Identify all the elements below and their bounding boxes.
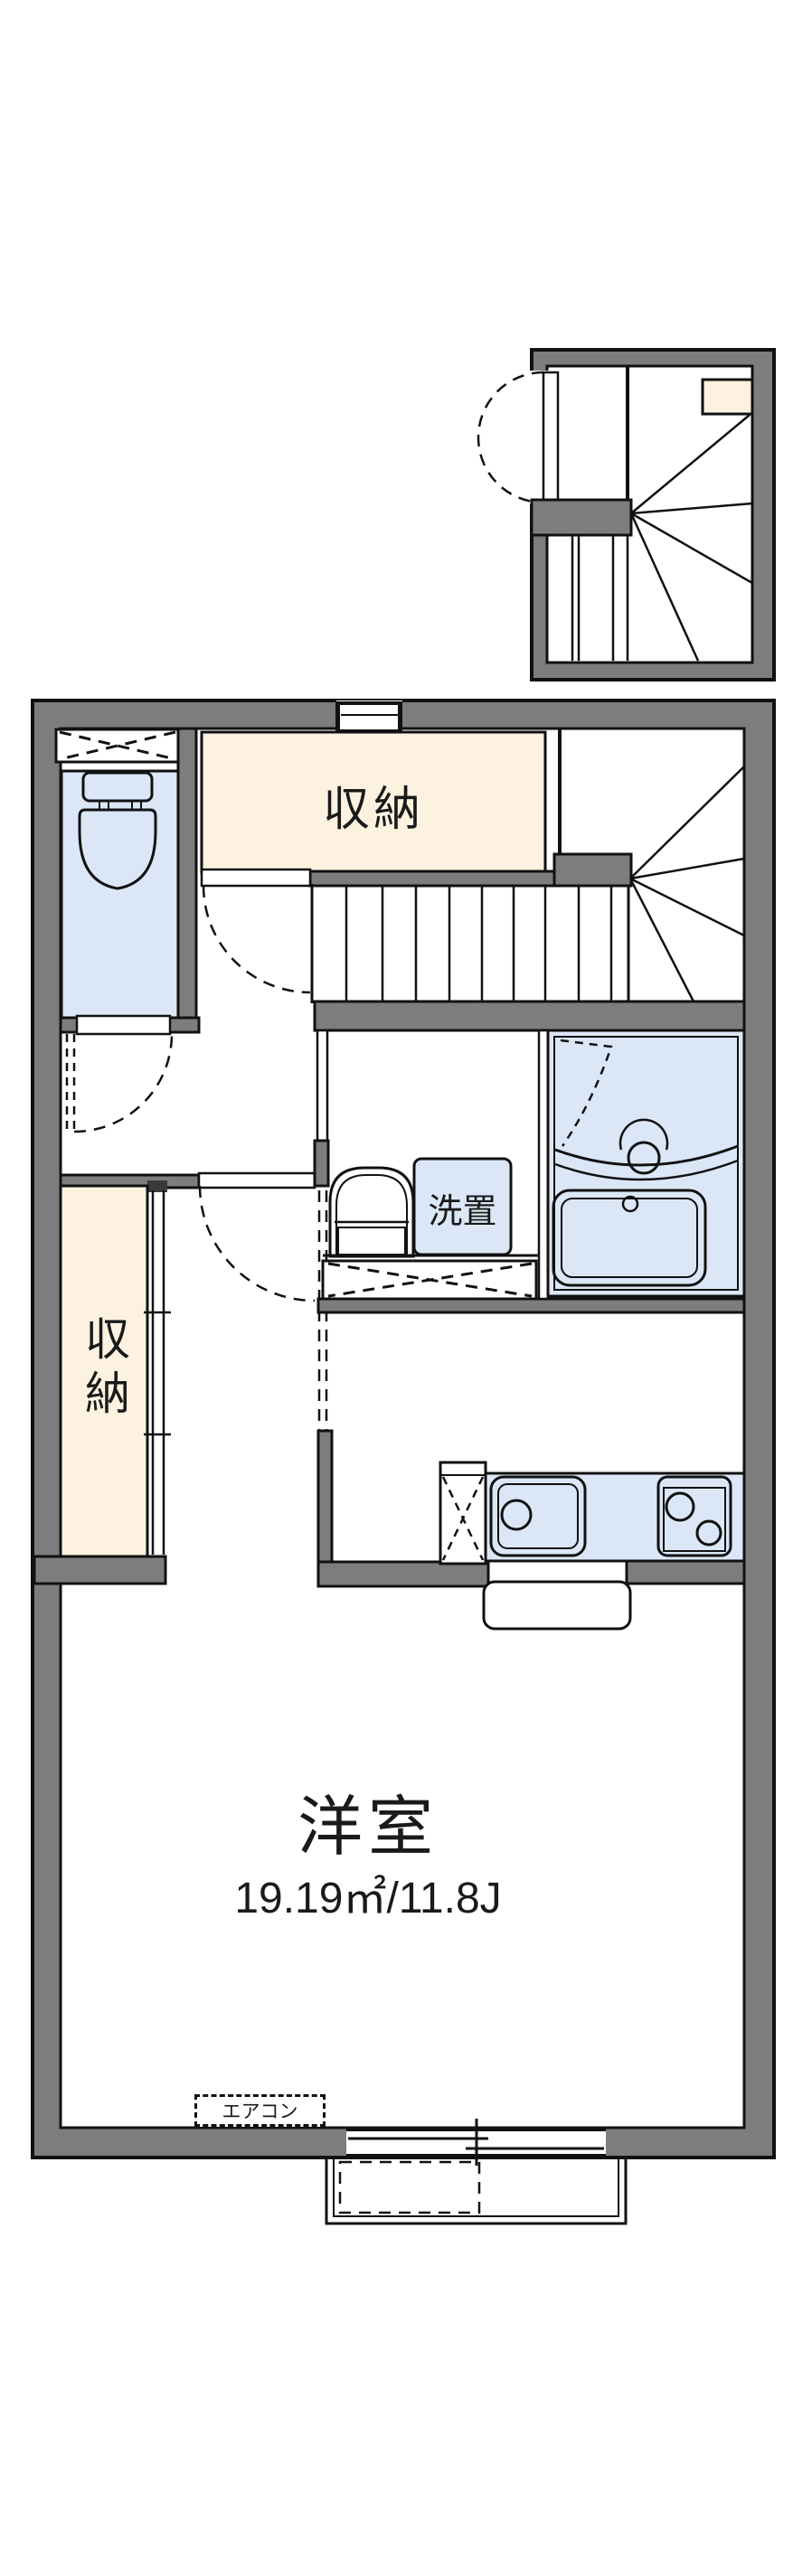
balcony-outer — [326, 2158, 626, 2223]
toilet-floor — [61, 771, 178, 1020]
room-area-label: 19.19㎡/11.8J — [142, 1867, 594, 1920]
bathroom-floor — [548, 1030, 744, 1296]
laundry-label: 洗置 — [414, 1164, 511, 1251]
balcony — [326, 2158, 626, 2223]
balcony-inner — [334, 2158, 618, 2216]
washroom-wall-stub — [315, 1141, 328, 1186]
closet-door-sill — [202, 870, 310, 886]
aircon-box: エアコン — [194, 2094, 326, 2127]
bathroom — [539, 1030, 744, 1299]
washroom-west-wall — [317, 1030, 327, 1141]
toilet-door-sill — [77, 1016, 170, 1034]
stairwell-winder-wall — [532, 500, 631, 535]
hall-door-sill — [199, 1173, 315, 1188]
toilet-east-wall — [178, 729, 196, 1032]
side-closet-south-wall — [34, 1556, 165, 1584]
stairwell-block — [478, 350, 774, 680]
stair-south-wall — [315, 1001, 744, 1030]
upper-closet-label: 収納 — [202, 741, 545, 868]
pipe-space — [440, 1462, 486, 1564]
stairwell-door-leaf — [543, 372, 558, 503]
floor-plan: 収納 収納 洗置 洋室 19.19㎡/11.8J エアコン — [0, 0, 812, 2576]
closet-south-wall — [310, 871, 562, 886]
kitchen-west-wall — [318, 1562, 488, 1586]
washroom-south-wall — [318, 1299, 744, 1312]
stairwell-cabinet — [703, 380, 752, 414]
stair-winder-wall — [554, 854, 631, 886]
refrigerator-space — [484, 1582, 630, 1629]
side-closet-label: 収納 — [65, 1288, 143, 1451]
room-name-label: 洋室 — [142, 1782, 594, 1858]
kitchen-south-wall — [627, 1561, 744, 1584]
top-wall-window — [335, 700, 402, 734]
balcony-dashed-area — [340, 2162, 479, 2213]
